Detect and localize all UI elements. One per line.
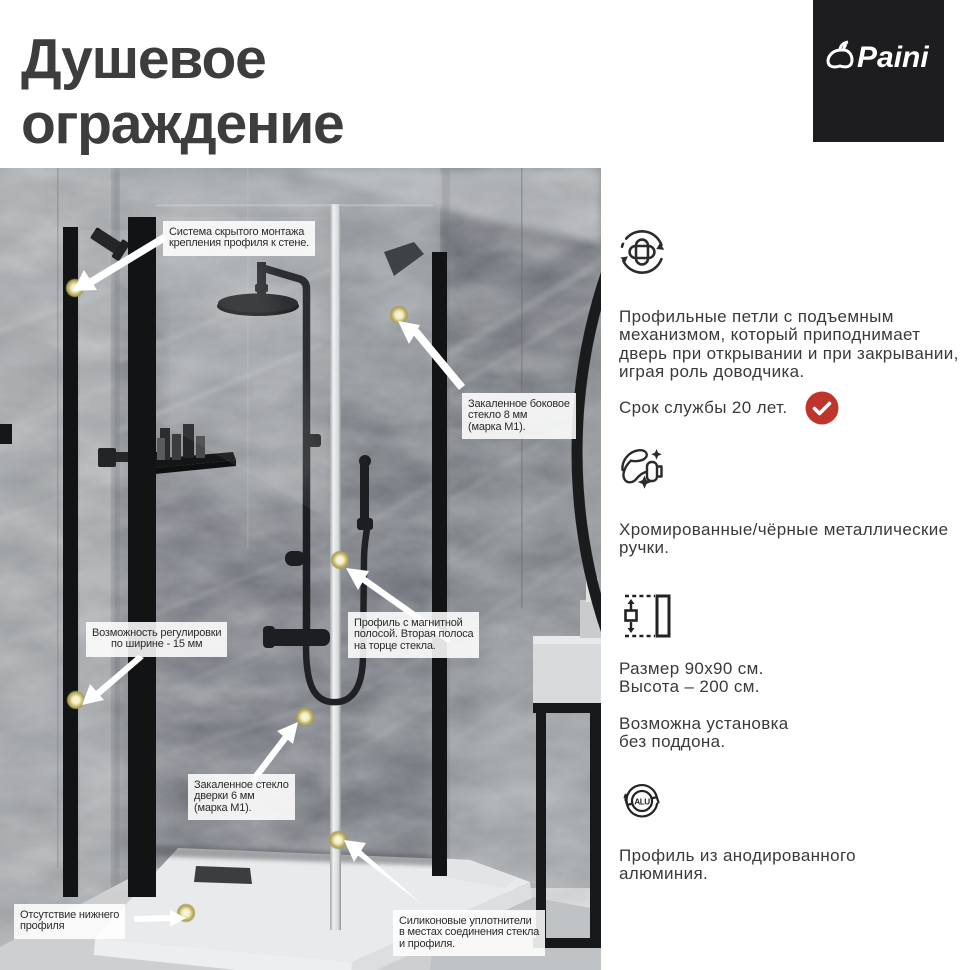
svg-text:Paini: Paini [857,41,929,74]
svg-text:ALU: ALU [634,797,650,806]
